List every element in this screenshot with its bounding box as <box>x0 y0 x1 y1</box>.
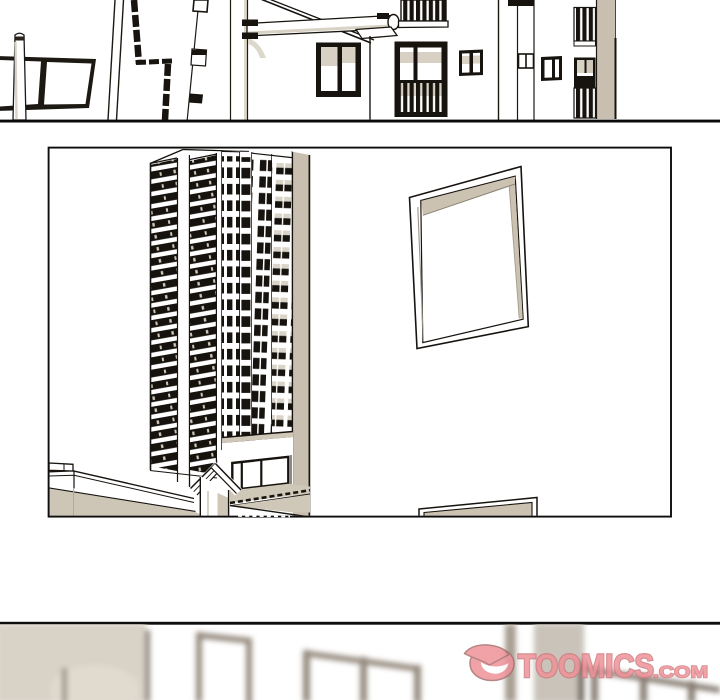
svg-text:TOOMICS: TOOMICS <box>518 648 654 684</box>
svg-text:.COM: .COM <box>653 663 708 682</box>
